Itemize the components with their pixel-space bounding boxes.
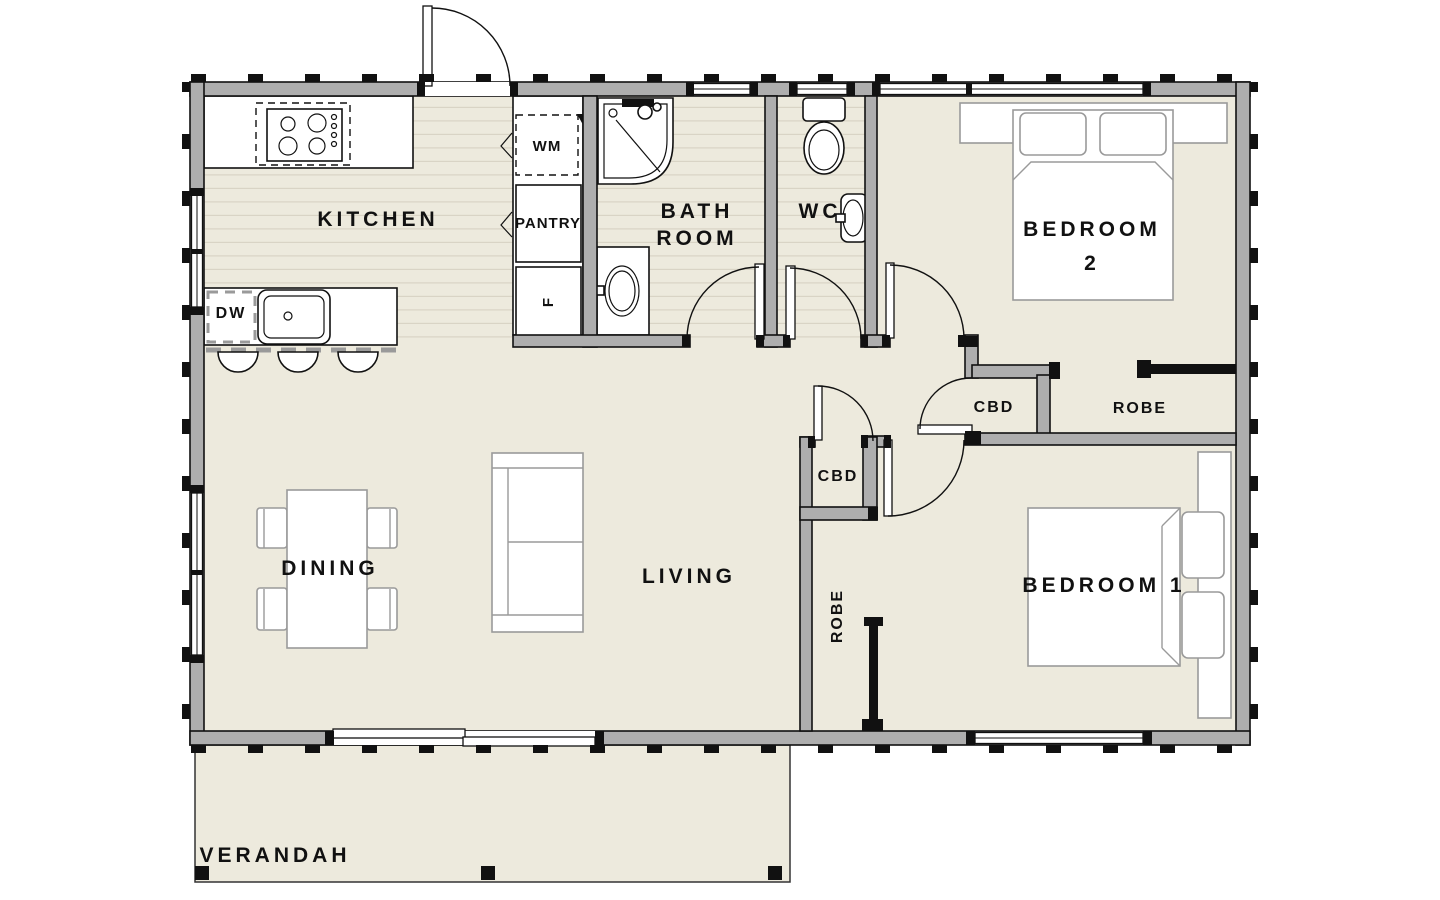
cooktop-icon — [267, 109, 342, 161]
label-robe-bedroom2: ROBE — [1113, 400, 1167, 417]
label-robe-bedroom1: ROBE — [829, 589, 846, 643]
window-bedroom2-top — [880, 83, 1143, 95]
label-dishwasher: DW — [216, 305, 247, 322]
robe-rail-bedroom1 — [869, 622, 878, 725]
verandah-post — [768, 866, 782, 880]
room-label-bedroom2-line1: BEDROOM — [1023, 218, 1161, 241]
sink-icon — [258, 290, 330, 344]
room-label-bathroom-line1: BATH — [661, 200, 734, 223]
sliding-door-living — [333, 729, 595, 746]
wall-cbd-east — [1037, 375, 1050, 437]
room-label-bathroom-line2: ROOM — [656, 227, 737, 250]
chair-icon — [257, 508, 287, 548]
bedhead-side-tables — [1198, 452, 1231, 718]
pillow-icon — [1100, 113, 1166, 155]
wall-bedroom-divider — [965, 433, 1236, 445]
toilet-icon — [803, 98, 845, 174]
room-label-verandah: VERANDAH — [199, 844, 350, 867]
chair-icon — [367, 588, 397, 630]
wall-south-laundry-bath — [513, 335, 690, 347]
window-kitchen-left — [191, 195, 203, 307]
label-cbd-living: CBD — [818, 468, 859, 485]
floorplan-drawing: KITCHEN BATH ROOM WC BEDROOM 2 BEDROOM 1… — [0, 0, 1440, 900]
room-label-kitchen: KITCHEN — [317, 208, 438, 231]
wall-wc-bedroom2 — [865, 96, 877, 347]
room-label-bedroom2-line2: 2 — [1084, 252, 1100, 275]
label-cbd-hall: CBD — [974, 399, 1015, 416]
window-dining-left — [191, 493, 203, 655]
sofa-icon — [492, 453, 583, 632]
room-label-wc: WC — [799, 200, 842, 223]
verandah-post — [481, 866, 495, 880]
room-label-bedroom1: BEDROOM 1 — [1022, 574, 1185, 597]
pillow-icon — [1182, 592, 1224, 658]
wall-bedroom1-west — [800, 437, 812, 731]
window-bathroom-top — [693, 84, 750, 95]
room-label-dining: DINING — [281, 557, 379, 580]
wall-kitchen-bathroom — [583, 96, 597, 347]
pillow-icon — [1182, 512, 1224, 578]
label-pantry: PANTRY — [515, 215, 581, 232]
pillow-icon — [1020, 113, 1086, 155]
robe-rail-bedroom2 — [1140, 364, 1236, 374]
vanity-basin-icon — [595, 247, 649, 335]
window-bedroom1-bottom — [975, 733, 1143, 744]
chair-icon — [367, 508, 397, 548]
wall-bathroom-wc — [765, 96, 777, 347]
shower-icon — [598, 98, 673, 184]
verandah-post — [195, 866, 209, 880]
label-fridge: F — [540, 297, 557, 307]
chair-icon — [257, 588, 287, 630]
wall-bedroom1-north — [800, 507, 877, 520]
room-label-living: LIVING — [642, 565, 736, 588]
window-wc-top — [797, 84, 847, 95]
floorplan-canvas: KITCHEN BATH ROOM WC BEDROOM 2 BEDROOM 1… — [0, 0, 1440, 900]
label-washing-machine: WM — [533, 138, 562, 155]
exterior-wall-right — [1236, 82, 1250, 745]
